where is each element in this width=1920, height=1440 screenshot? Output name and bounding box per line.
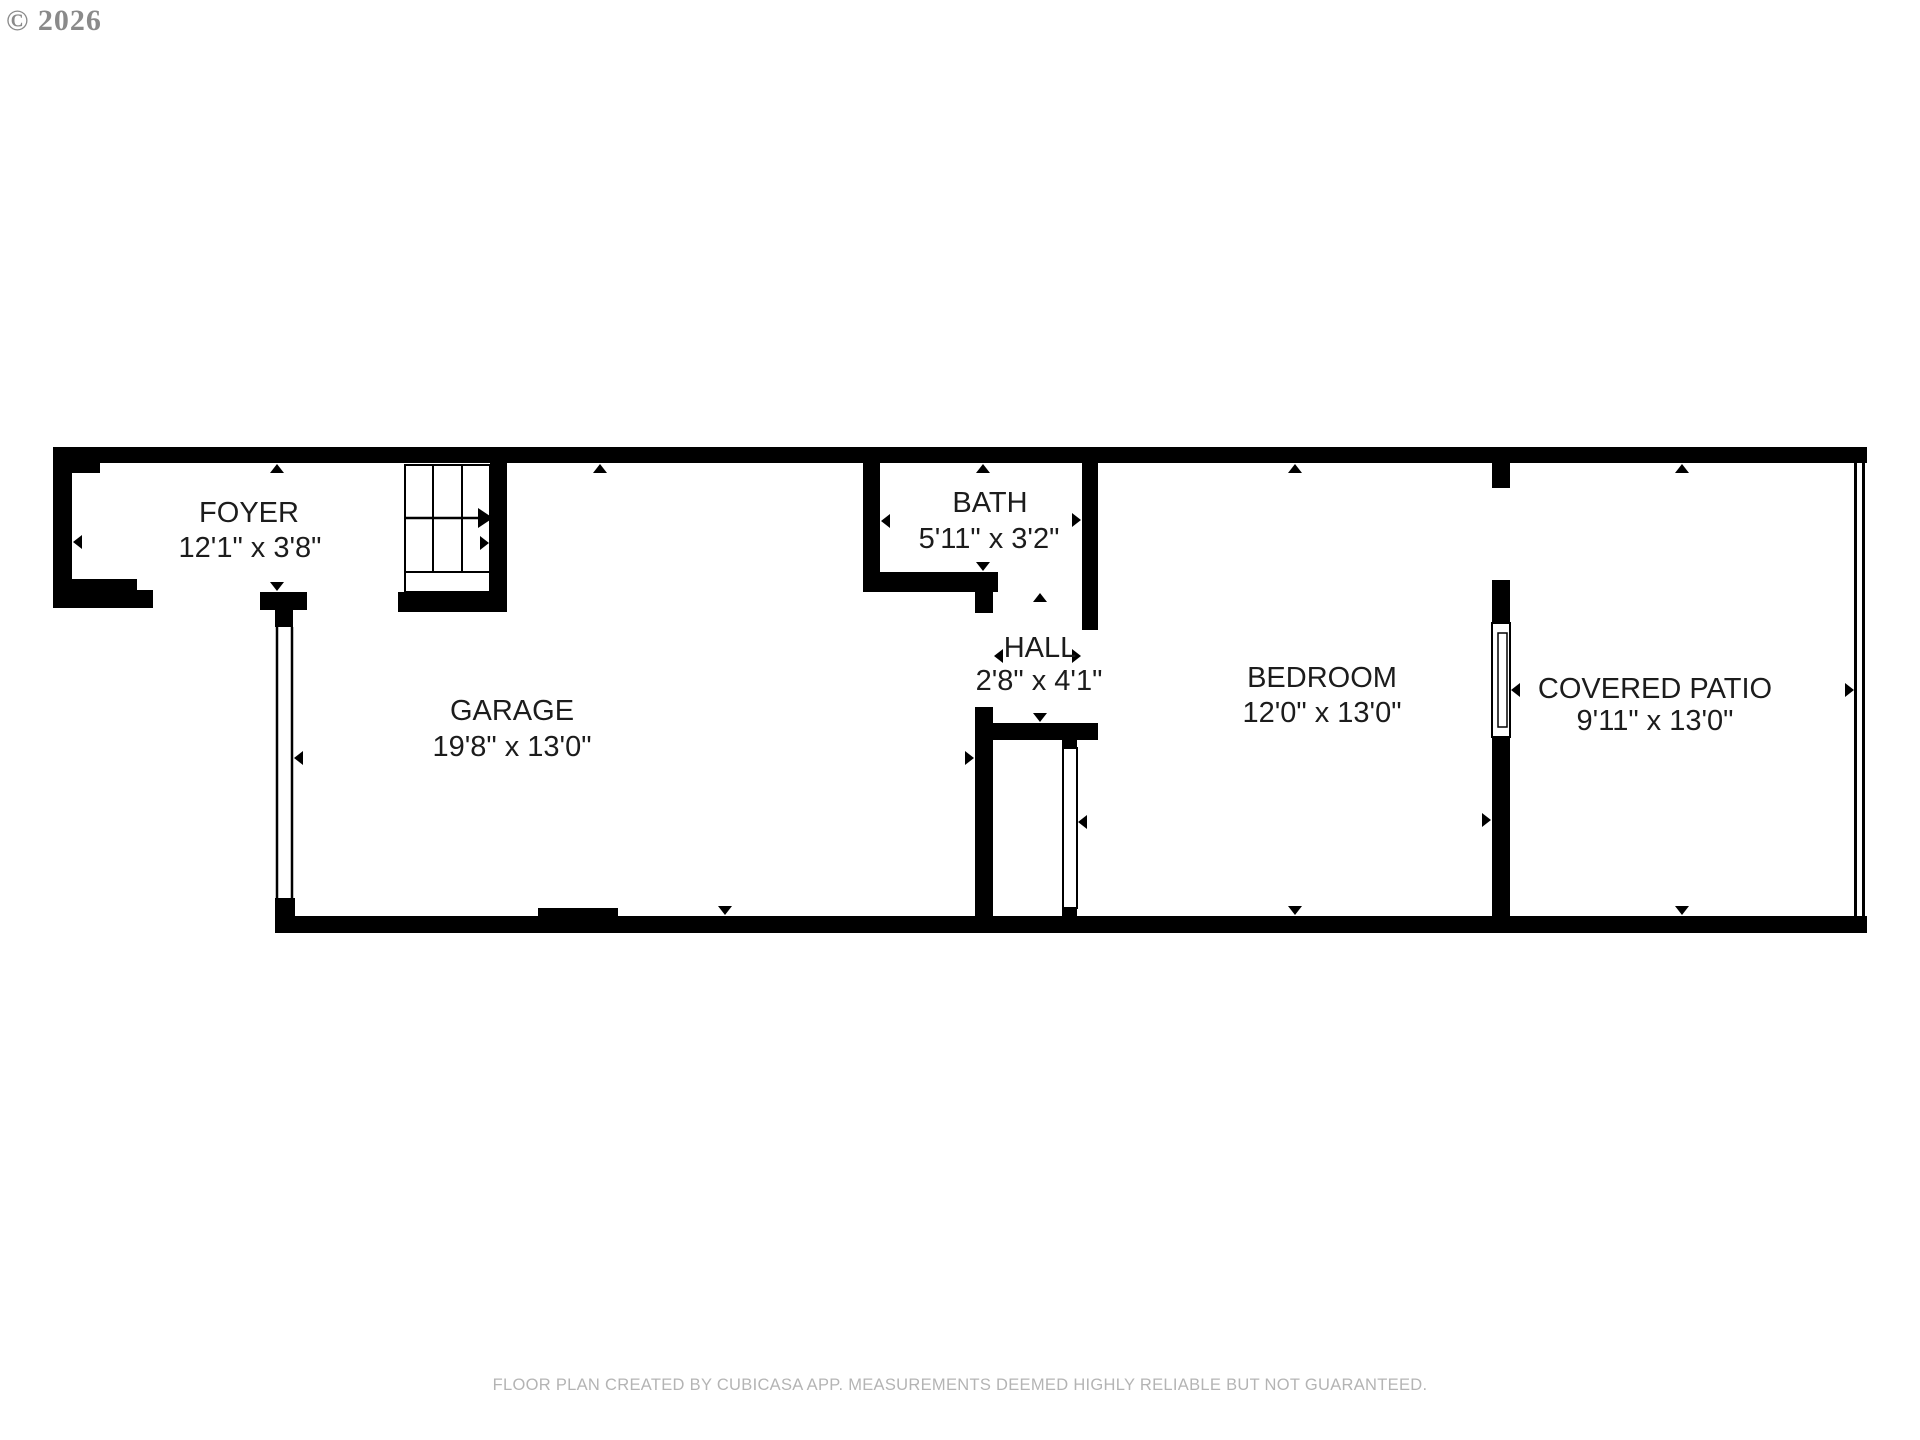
bedroom-arrow-right — [1482, 813, 1491, 827]
wall-stairs-right — [490, 447, 507, 612]
patio-arrow-left — [1511, 683, 1520, 697]
room-label-foyer: FOYER — [199, 497, 299, 529]
room-label-covered-patio: COVERED PATIO — [1538, 673, 1772, 705]
wall-hall-left-lower — [975, 707, 993, 933]
floorplan-page: © 2026 — [0, 0, 1920, 1440]
hall-arrow-left — [994, 649, 1003, 663]
bath-arrow-up — [976, 464, 990, 473]
wall-top — [53, 447, 1867, 463]
closet-door-leaf — [1063, 748, 1077, 908]
room-label-bath: BATH — [952, 487, 1027, 519]
room-dims-covered-patio: 9'11" x 13'0" — [1577, 705, 1734, 737]
bath-arrow-down — [976, 562, 990, 571]
patio-arrow-right — [1845, 683, 1854, 697]
room-label-garage: GARAGE — [450, 695, 574, 727]
foyer-arrow-up — [270, 464, 284, 473]
room-dims-hall: 2'8" x 4'1" — [976, 665, 1103, 697]
stairs — [405, 465, 493, 592]
garage-arrow-down — [718, 906, 732, 915]
garage-bottom-bump — [538, 908, 618, 916]
garage-arrow-up — [593, 464, 607, 473]
room-label-bedroom: BEDROOM — [1247, 662, 1397, 694]
room-label-hall: HALL — [1004, 632, 1077, 664]
wall-hall-left-stub — [975, 592, 993, 613]
wall-bath-bottom — [863, 572, 998, 592]
wall-bedroom-patio-mid — [1492, 580, 1510, 623]
foyer-arrow-down — [270, 582, 284, 591]
room-dims-bath: 5'11" x 3'2" — [919, 523, 1060, 555]
closet-door-bottom-block — [1062, 908, 1077, 920]
foyer-arrow-right — [480, 536, 489, 550]
room-dims-bedroom: 12'0" x 13'0" — [1242, 697, 1401, 729]
bedroom-arrow-up — [1288, 464, 1302, 473]
bedroom-arrow-left — [1078, 815, 1087, 829]
hall-arrow-down — [1033, 713, 1047, 722]
wall-bedroom-patio-top — [1492, 447, 1510, 488]
garage-arrow-right — [965, 751, 974, 765]
bath-arrow-left — [881, 514, 890, 528]
bath-arrow-right — [1072, 513, 1081, 527]
footer-disclaimer: FLOOR PLAN CREATED BY CUBICASA APP. MEAS… — [0, 1376, 1920, 1395]
wall-foyer-bottom — [53, 579, 137, 608]
foyer-arrow-left — [73, 535, 82, 549]
bedroom-arrow-down — [1288, 906, 1302, 915]
wall-bath-right — [1082, 463, 1098, 630]
front-door-header — [260, 592, 307, 610]
room-dims-garage: 19'8" x 13'0" — [432, 731, 591, 763]
wall-stairs-bottom — [398, 592, 507, 612]
room-dims-foyer: 12'1" x 3'8" — [179, 532, 322, 564]
patio-arrow-up — [1675, 464, 1689, 473]
closet-door-top-block — [1062, 740, 1077, 748]
wall-foyer-bottom-step — [137, 590, 153, 608]
front-door-stub — [275, 610, 293, 627]
floorplan-drawing: FOYER 12'1" x 3'8" GARAGE 19'8" x 13'0" … — [0, 0, 1920, 1440]
garage-arrow-left — [294, 751, 303, 765]
wall-hall-bottom — [975, 723, 1098, 740]
hall-arrow-up — [1033, 593, 1047, 602]
patio-arrow-down — [1675, 906, 1689, 915]
wall-bedroom-patio-bottom — [1492, 737, 1510, 933]
